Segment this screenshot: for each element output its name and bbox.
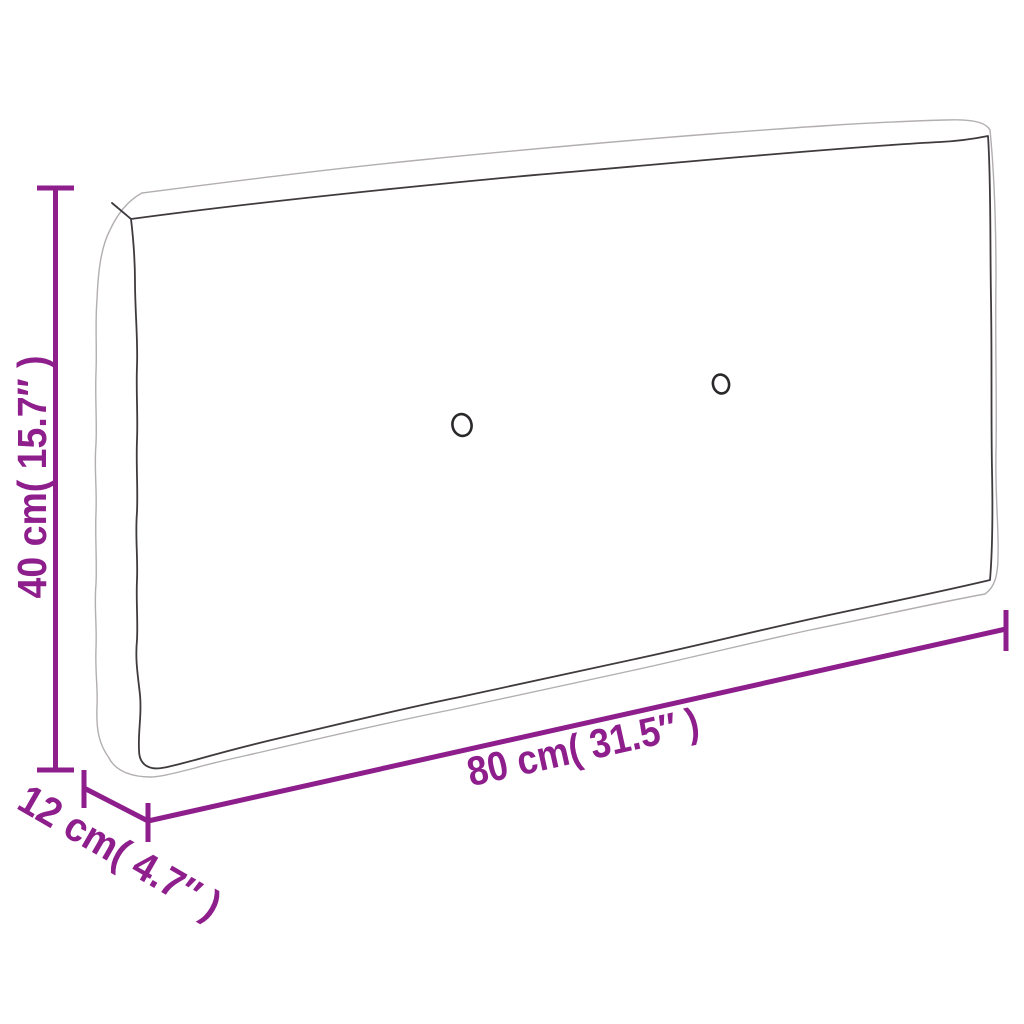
length-dimension-label: 80 cm( 31.5″ ) [463,699,703,795]
product-dimension-diagram: 40 cm( 15.7″ ) 80 cm( 31.5″ ) 12 cm( 4.7… [0,0,1024,1024]
height-dimension-label: 40 cm( 15.7″ ) [9,356,55,599]
depth-dimension-label: 12 cm( 4.7″ ) [11,776,230,929]
height-dimension: 40 cm( 15.7″ ) [9,188,74,770]
diagram-canvas: 40 cm( 15.7″ ) 80 cm( 31.5″ ) 12 cm( 4.7… [0,0,1024,1024]
cushion-illustration [95,120,998,777]
depth-dimension: 12 cm( 4.7″ ) [11,770,230,928]
